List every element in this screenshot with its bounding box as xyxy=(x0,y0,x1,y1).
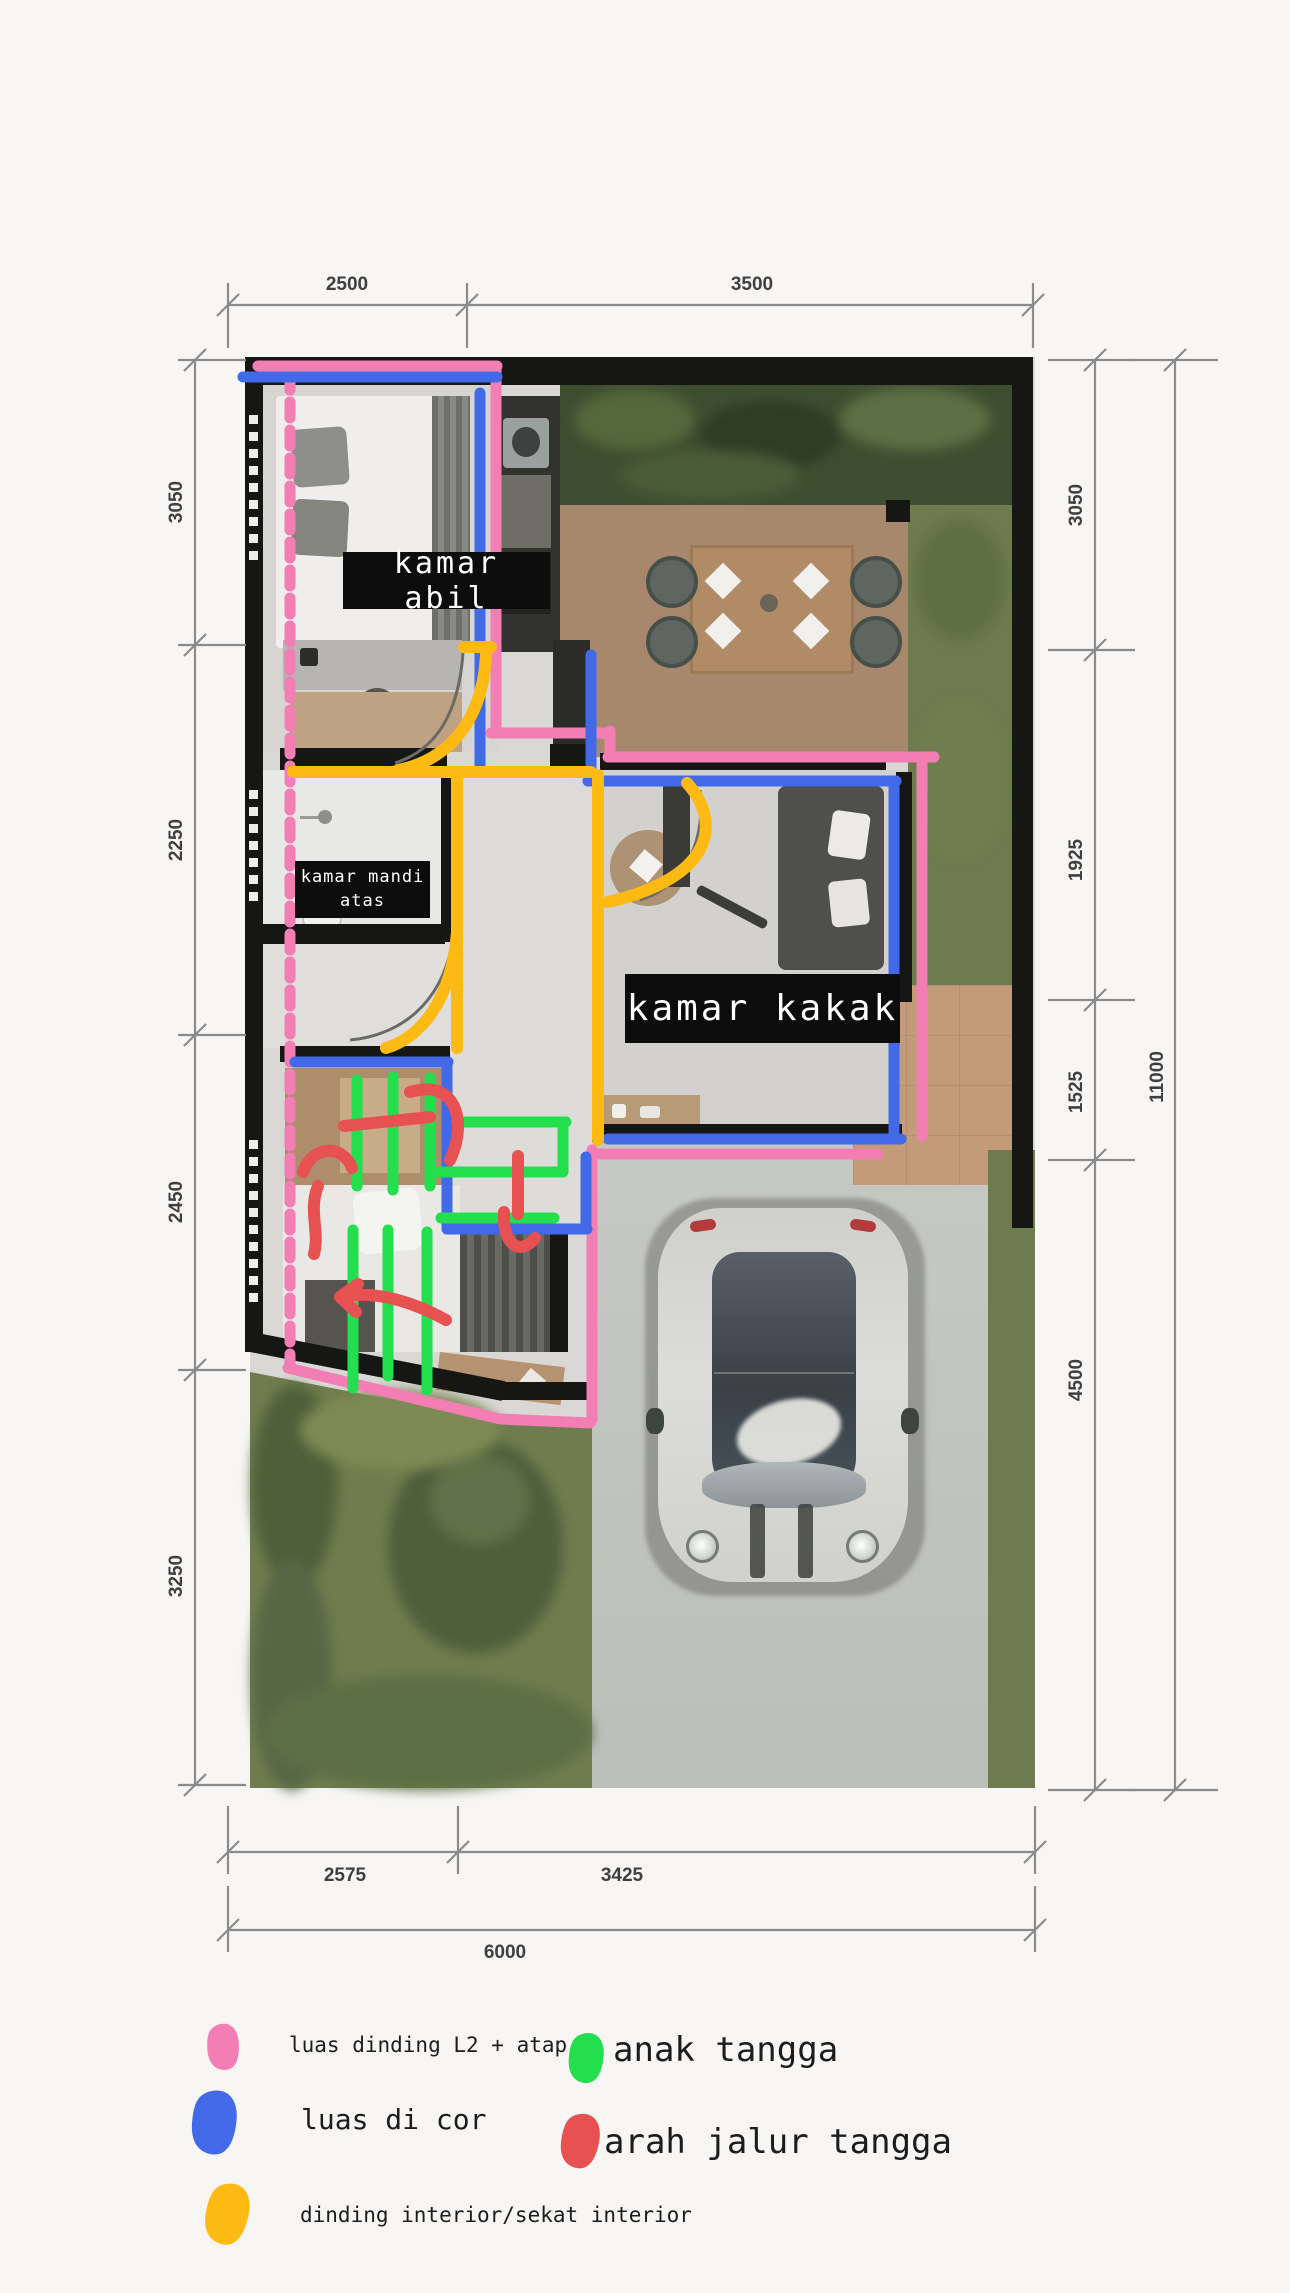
wall-kakak-right xyxy=(896,772,912,1002)
bed2-blanket xyxy=(305,1280,375,1352)
wall-top xyxy=(245,357,1033,385)
legend-label-green: anak tangga xyxy=(613,2030,838,2070)
dim-top-left: 2500 xyxy=(307,274,387,296)
stair-landing-floor xyxy=(263,944,450,1048)
dim-bottom-total: 6000 xyxy=(465,1942,545,1964)
vegetation-clump xyxy=(915,520,1005,640)
dim-line-right-outer xyxy=(1128,360,1218,1790)
room-label-kamar-abil: kamar abil xyxy=(343,552,550,609)
wall-bath-top xyxy=(280,748,447,770)
dim-ticks-top xyxy=(217,294,1044,316)
vegetation-clump xyxy=(840,388,990,450)
car-mirror xyxy=(901,1408,919,1434)
bed2-pillow xyxy=(352,1187,424,1256)
dim-right-total: 11000 xyxy=(1147,1037,1169,1117)
dim-line-bottom-1 xyxy=(228,1806,1035,1874)
room-label-text: kamar mandi xyxy=(301,866,425,890)
dim-top-right: 3500 xyxy=(712,274,792,296)
dim-line-right-inner xyxy=(1048,360,1135,1790)
legend-swatch-green xyxy=(564,2026,608,2090)
wall-kakak-top xyxy=(600,753,886,770)
fridge xyxy=(553,640,590,752)
dim-line-bottom-2 xyxy=(228,1886,1035,1952)
legend: luas dinding L2 + atap luas di cor dindi… xyxy=(0,2000,1290,2293)
dim-right-4: 4500 xyxy=(1066,1340,1088,1420)
car-mirror xyxy=(646,1408,664,1434)
dining-chair xyxy=(646,556,698,608)
car-hood-stripe xyxy=(750,1504,765,1578)
car-headlight xyxy=(846,1530,879,1563)
room-label-text: atas xyxy=(340,890,385,914)
room-label-text: kamar abil xyxy=(343,546,550,616)
vegetation-clump xyxy=(620,450,800,500)
desk-item xyxy=(300,648,318,666)
sofa-pillow xyxy=(827,810,871,861)
dim-line-left xyxy=(178,360,246,1785)
car-hood-stripe xyxy=(798,1504,813,1578)
room-label-text: kamar kakak xyxy=(627,988,898,1029)
car-roof-divider xyxy=(714,1372,854,1374)
car-windshield xyxy=(702,1462,866,1508)
dresser-item xyxy=(640,1106,660,1118)
hall-floor xyxy=(443,770,592,1048)
dim-ticks-bottom-2 xyxy=(217,1919,1046,1941)
window-bathroom xyxy=(249,790,258,905)
legend-swatch-yellow xyxy=(190,2175,263,2254)
room-label-kamar-kakak: kamar kakak xyxy=(625,974,900,1043)
dim-left-3: 2450 xyxy=(166,1162,188,1242)
wall-bath-right xyxy=(441,770,459,942)
bedroom2-floor xyxy=(450,1048,592,1228)
annotated-floor-plan: kamar abil kamar mandi atas kamar kakak … xyxy=(0,0,1290,2293)
dim-bottom-right: 3425 xyxy=(582,1865,662,1887)
grass-light-patch xyxy=(300,1390,500,1470)
room-label-kamar-mandi-atas: kamar mandi atas xyxy=(295,861,430,918)
legend-swatch-blue xyxy=(184,2085,244,2160)
dim-left-1: 3050 xyxy=(166,462,188,542)
legend-label-pink: luas dinding L2 + atap xyxy=(289,2033,567,2057)
grass-right-lower xyxy=(988,1150,1035,1788)
sofa-pillow xyxy=(828,878,871,928)
kitchen-counter-mid xyxy=(501,475,551,548)
dim-right-1: 3050 xyxy=(1066,465,1088,545)
dining-chair xyxy=(646,616,698,668)
window-bedroom2 xyxy=(249,1140,258,1305)
car-headlight xyxy=(686,1530,719,1563)
wall-bottom-flat xyxy=(498,1382,592,1400)
wall-kakak-bottom xyxy=(592,1124,902,1142)
vegetation-clump xyxy=(575,390,695,450)
dim-ticks-bottom-1 xyxy=(217,1841,1046,1863)
legend-swatch-red xyxy=(553,2100,606,2181)
dim-right-2: 1925 xyxy=(1066,820,1088,900)
legend-swatch-pink xyxy=(193,2017,254,2078)
kitchen-sink-bowl xyxy=(512,427,540,457)
dresser-item xyxy=(612,1104,626,1118)
hedge-bottom xyxy=(262,1675,592,1790)
big-bush-highlight xyxy=(430,1455,530,1545)
dim-right-3: 1525 xyxy=(1066,1052,1088,1132)
shower-head xyxy=(318,810,332,824)
bench xyxy=(290,692,462,752)
car xyxy=(650,1200,915,1590)
legend-label-blue: luas di cor xyxy=(301,2103,486,2136)
dining-chair xyxy=(850,616,902,668)
column-dining xyxy=(886,500,910,522)
dim-left-4: 3250 xyxy=(166,1536,188,1616)
vegetation-clump xyxy=(915,700,1005,860)
wall-stair-top xyxy=(280,1046,450,1062)
wall-right xyxy=(1012,365,1033,1228)
curtain2 xyxy=(460,1228,556,1352)
window-kamar-abil xyxy=(249,415,258,565)
wall-bath-bottom xyxy=(258,924,445,944)
legend-label-red: arah jalur tangga xyxy=(604,2122,952,2162)
wall-kitchen-bottom xyxy=(550,744,592,772)
centerpiece xyxy=(760,594,778,612)
pillow xyxy=(291,499,350,558)
pillow xyxy=(290,426,350,488)
legend-label-yellow: dinding interior/sekat interior xyxy=(300,2203,692,2227)
wall-bedroom2-right xyxy=(550,1226,568,1352)
dim-left-2: 2250 xyxy=(166,800,188,880)
closet-inner xyxy=(340,1078,420,1173)
sofa xyxy=(778,786,884,970)
dining-chair xyxy=(850,556,902,608)
tv-console xyxy=(663,785,690,887)
dim-bottom-left: 2575 xyxy=(305,1865,385,1887)
